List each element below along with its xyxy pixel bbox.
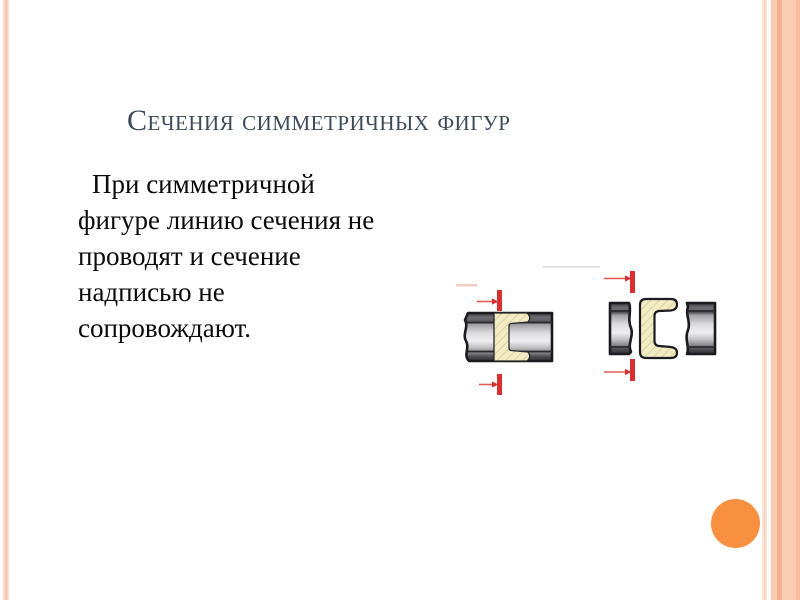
accent-circle — [711, 499, 760, 548]
sections-drawing — [450, 255, 740, 405]
right-border-band — [771, 0, 800, 600]
right-border-thin-stripe — [762, 0, 767, 600]
slide: { "slide": { "title": "Сечения симметрич… — [0, 0, 800, 600]
break-section-hatch — [640, 299, 677, 358]
cutting-plane-marker-bottom — [479, 374, 502, 395]
body-paragraph: При симметричной фигуре линию сечения не… — [78, 166, 381, 346]
cutting-plane-marker-bottom-right — [604, 359, 635, 381]
slide-title: Сечения симметричных фигур — [127, 104, 647, 138]
left-border-stripe — [3, 0, 9, 600]
right-figure-section-in-break — [604, 271, 715, 381]
cutting-plane-marker-top — [477, 290, 502, 311]
faint-line-artifact — [543, 266, 600, 268]
cutting-plane-marker-top-right — [604, 271, 635, 293]
faint-red-artifact — [456, 284, 477, 286]
left-figure-superimposed-section — [465, 290, 552, 395]
